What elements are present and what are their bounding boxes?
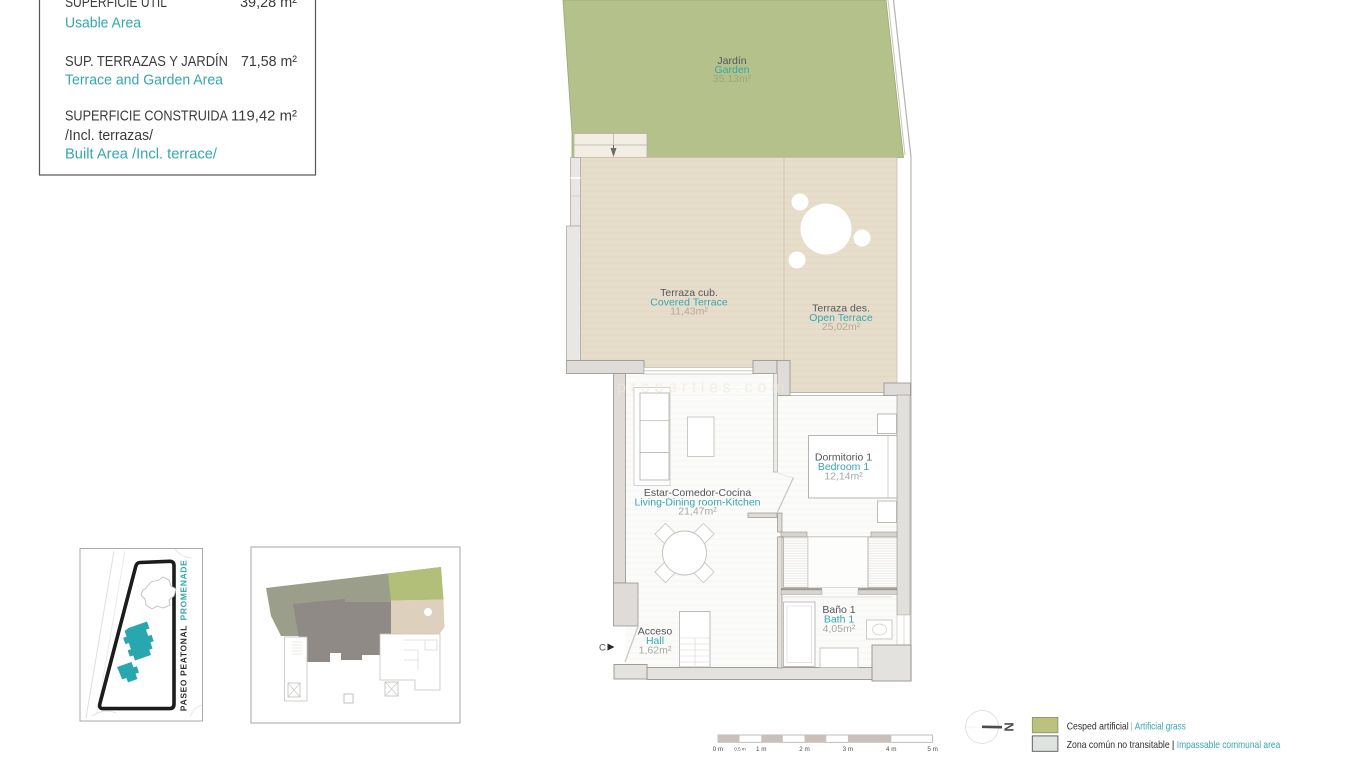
svg-text:|: |: [1172, 739, 1175, 751]
svg-text:11,43m²: 11,43m²: [670, 306, 708, 318]
svg-text:39,28 m²: 39,28 m²: [240, 0, 297, 11]
svg-text:2 m: 2 m: [799, 746, 810, 753]
svg-text:1 m: 1 m: [756, 746, 767, 753]
svg-text:/Incl. terrazas/: /Incl. terrazas/: [65, 127, 154, 144]
svg-text:Terrace and Garden Area: Terrace and Garden Area: [65, 72, 224, 89]
svg-text:0 m: 0 m: [713, 746, 724, 753]
svg-text:3 m: 3 m: [843, 746, 854, 753]
svg-text:119,42 m²: 119,42 m²: [231, 108, 297, 125]
svg-text:Cesped artificial: Cesped artificial: [1067, 721, 1129, 733]
svg-text:5 m: 5 m: [927, 746, 938, 753]
svg-text:Usable Area: Usable Area: [65, 15, 142, 32]
svg-text:25,02m²: 25,02m²: [822, 321, 861, 333]
svg-text:properties.com: properties.com: [617, 379, 789, 397]
svg-text:PASEO PEATONAL: PASEO PEATONAL: [179, 625, 189, 711]
svg-text:|: |: [1130, 721, 1133, 733]
svg-text:0,5 m: 0,5 m: [734, 747, 746, 752]
svg-text:35,13m²: 35,13m²: [713, 73, 752, 85]
svg-text:SUPERFICIE CONSTRUIDA: SUPERFICIE CONSTRUIDA: [65, 108, 228, 125]
svg-text:C: C: [599, 643, 606, 654]
svg-text:PROMENADE: PROMENADE: [179, 560, 189, 621]
svg-text:Artificial grass: Artificial grass: [1135, 721, 1186, 733]
svg-text:SUP. TERRAZAS Y JARDÍN: SUP. TERRAZAS Y JARDÍN: [65, 53, 228, 70]
svg-text:71,58 m²: 71,58 m²: [241, 53, 297, 70]
svg-text:SUPERFICIE ÚTIL: SUPERFICIE ÚTIL: [65, 0, 167, 11]
svg-text:12,14m²: 12,14m²: [824, 471, 863, 483]
svg-text:Built Area /Incl. terrace/: Built Area /Incl. terrace/: [65, 146, 218, 163]
svg-text:21,47m²: 21,47m²: [678, 506, 717, 518]
svg-text:Impassable communal area: Impassable communal area: [1177, 739, 1281, 751]
svg-text:1,62m²: 1,62m²: [639, 645, 672, 657]
svg-text:4 m: 4 m: [886, 746, 897, 753]
svg-text:4,05m²: 4,05m²: [823, 623, 856, 635]
svg-text:N: N: [1002, 722, 1017, 731]
svg-text:Zona común no transitable: Zona común no transitable: [1067, 739, 1170, 751]
